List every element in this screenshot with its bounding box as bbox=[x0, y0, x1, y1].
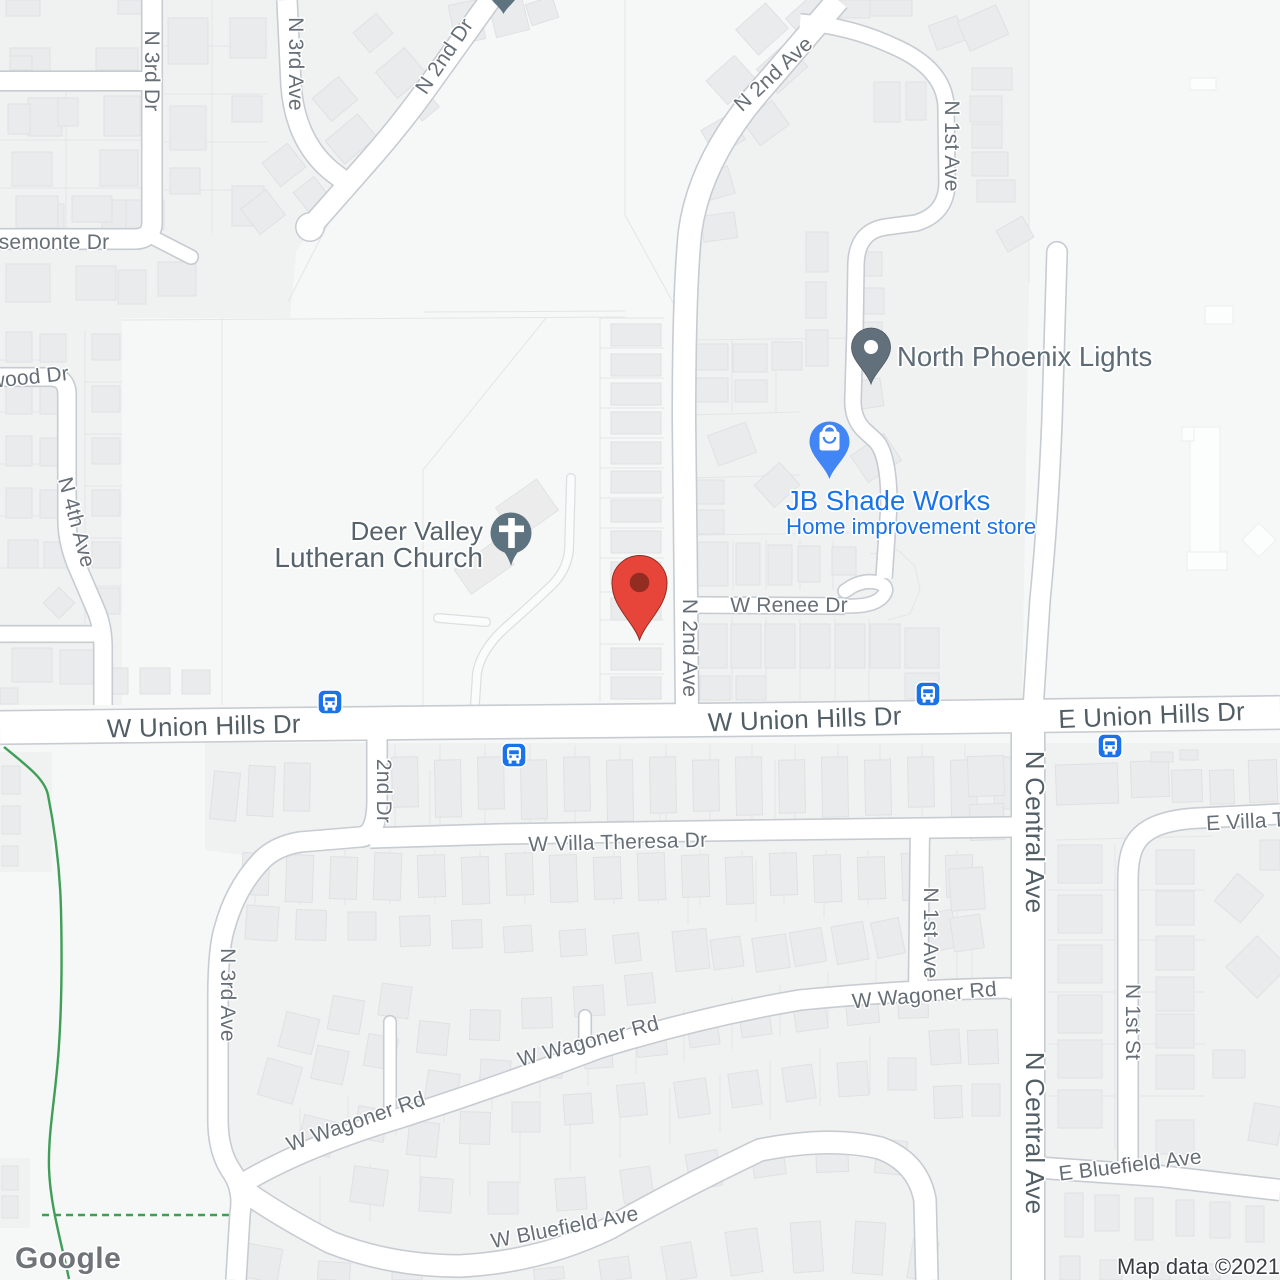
svg-text:Lutheran Church: Lutheran Church bbox=[274, 542, 483, 573]
svg-text:N 1st Ave: N 1st Ave bbox=[940, 100, 963, 191]
svg-text:N 2nd Ave: N 2nd Ave bbox=[678, 599, 701, 697]
svg-text:N Central Ave: N Central Ave bbox=[1020, 1052, 1050, 1215]
svg-text:N 3rd Dr: N 3rd Dr bbox=[140, 31, 163, 112]
svg-text:JB Shade Works: JB Shade Works bbox=[786, 485, 990, 516]
svg-text:Home improvement store: Home improvement store bbox=[786, 514, 1036, 539]
svg-text:E Villa Th: E Villa Th bbox=[1206, 808, 1280, 836]
svg-text:Map data ©2021: Map data ©2021 bbox=[1117, 1254, 1280, 1279]
svg-text:N 1st Ave: N 1st Ave bbox=[919, 887, 942, 978]
svg-text:W Renee Dr: W Renee Dr bbox=[730, 594, 848, 617]
svg-text:North Phoenix Lights: North Phoenix Lights bbox=[897, 341, 1152, 372]
svg-text:N 3rd Ave: N 3rd Ave bbox=[284, 17, 307, 111]
svg-text:N 1st St: N 1st St bbox=[1121, 984, 1144, 1060]
svg-text:N Central Ave: N Central Ave bbox=[1020, 751, 1050, 914]
svg-text:W Union Hills Dr: W Union Hills Dr bbox=[106, 708, 301, 743]
svg-text:N 3rd Ave: N 3rd Ave bbox=[216, 948, 239, 1042]
svg-text:2nd Dr: 2nd Dr bbox=[372, 759, 395, 823]
svg-text:Google: Google bbox=[15, 1242, 121, 1275]
svg-text:semonte Dr: semonte Dr bbox=[0, 231, 109, 254]
svg-text:W Villa Theresa Dr: W Villa Theresa Dr bbox=[528, 829, 708, 857]
